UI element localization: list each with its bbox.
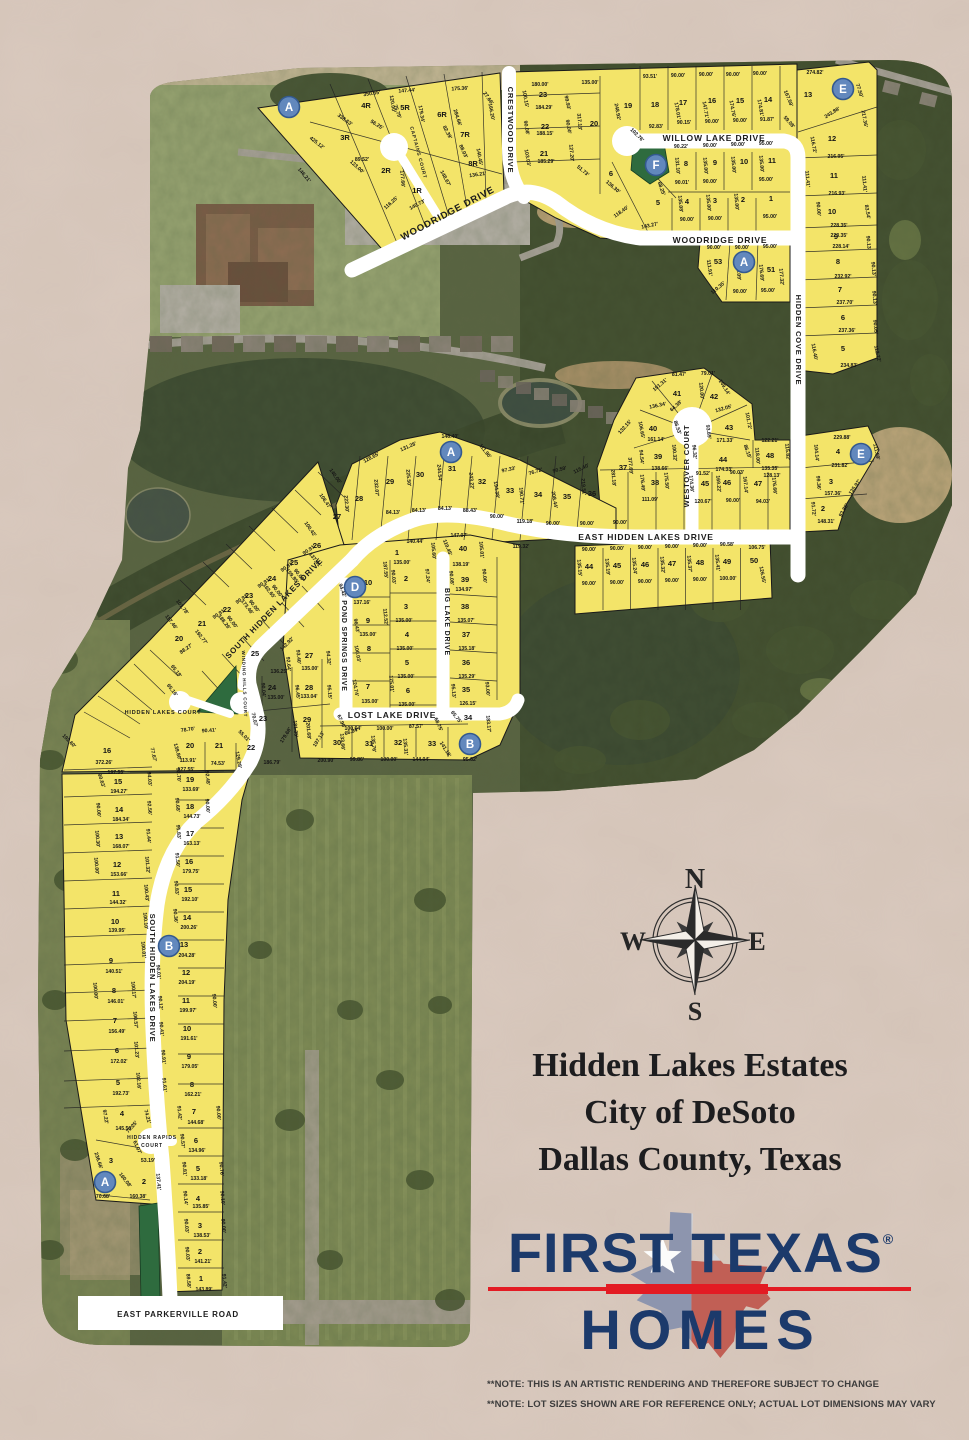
dimension-label: 95.15' bbox=[325, 685, 332, 700]
lot-number: 34 bbox=[534, 490, 543, 499]
dimension-label: 231.82' bbox=[831, 463, 848, 469]
dimension-label: 99.86' bbox=[350, 757, 364, 763]
dimension-label: 90.00' bbox=[733, 118, 747, 124]
logo-wordmark-top: FIRST TEXAS® bbox=[468, 1220, 933, 1285]
dimension-label: 91.72' bbox=[809, 502, 816, 517]
dimension-label: 93.40' bbox=[294, 650, 301, 665]
lot-number: 8R bbox=[468, 159, 478, 168]
lot-number: 27 bbox=[333, 512, 341, 521]
lot-number: 50 bbox=[750, 556, 758, 565]
dimension-label: 90.00' bbox=[94, 803, 101, 818]
dimension-label: 136.25' bbox=[270, 669, 287, 675]
dimension-label: 90.00' bbox=[735, 245, 749, 251]
dimension-label: 100.00' bbox=[380, 757, 397, 763]
lot-number: 8 bbox=[367, 644, 371, 653]
lot-number: 10 bbox=[183, 1024, 191, 1033]
lot-number: 3 bbox=[198, 1221, 202, 1230]
dimension-label: 90.00' bbox=[753, 71, 767, 77]
dimension-label: 194.27' bbox=[110, 789, 127, 795]
dimension-label: 135.00' bbox=[398, 702, 415, 708]
lot-number: 22 bbox=[223, 605, 231, 614]
lot-number: 9 bbox=[109, 956, 113, 965]
dimension-label: 90.13' bbox=[864, 236, 871, 251]
marker-letter: E bbox=[857, 449, 865, 461]
lot-number: 4R bbox=[361, 101, 371, 110]
lot-number: 5 bbox=[405, 658, 409, 667]
lot-number: 5 bbox=[116, 1078, 120, 1087]
dimension-label: 162.21' bbox=[184, 1092, 201, 1098]
lot-number: 2 bbox=[821, 504, 825, 513]
dimension-label: 119.32' bbox=[513, 544, 530, 550]
lot-number: 29 bbox=[386, 477, 394, 486]
dimension-label: 90.03' bbox=[183, 1247, 190, 1262]
lot-number: 5R bbox=[400, 103, 410, 112]
dimension-label: 90.00' bbox=[726, 72, 740, 78]
dimension-label: 90.10' bbox=[218, 1191, 225, 1206]
lot-number: 6R bbox=[437, 110, 447, 119]
dimension-label: 95.00' bbox=[763, 214, 777, 220]
lot-number: 30 bbox=[416, 470, 424, 479]
dimension-label: 216.93' bbox=[828, 191, 845, 197]
registered-mark: ® bbox=[883, 1231, 893, 1247]
dimension-label: 232.92' bbox=[834, 274, 851, 280]
dimension-label: 90.00' bbox=[610, 580, 624, 586]
lot-number: 19 bbox=[186, 775, 194, 784]
lot-number: 44 bbox=[585, 562, 594, 571]
dimension-label: 135.85' bbox=[192, 1204, 209, 1210]
dimension-label: 156.49' bbox=[108, 1029, 125, 1035]
marker-letter: D bbox=[351, 582, 359, 594]
lot-number: 21 bbox=[198, 619, 206, 628]
lot-number: 35 bbox=[462, 685, 470, 694]
lot-number: 45 bbox=[613, 561, 621, 570]
dimension-label: 144.04' bbox=[412, 757, 429, 763]
lot-number: 14 bbox=[183, 913, 192, 922]
dimension-label: 237.36' bbox=[838, 328, 855, 334]
dimension-label: 179.05' bbox=[181, 1064, 198, 1070]
dimension-label: 135.00' bbox=[581, 80, 598, 86]
dimension-label: 135.18' bbox=[458, 646, 475, 652]
lot-number: 1 bbox=[769, 194, 773, 203]
lot-number: 20 bbox=[186, 741, 194, 750]
compass-south-label: S bbox=[688, 997, 702, 1026]
lot-number: 3 bbox=[404, 602, 408, 611]
dimension-label: 90.00' bbox=[580, 521, 594, 527]
dimension-label: 90.00' bbox=[665, 578, 679, 584]
dimension-label: 90.00' bbox=[733, 289, 747, 295]
lot-number: 40 bbox=[459, 544, 467, 553]
lot-number: 37 bbox=[462, 630, 470, 639]
lot-number: 15 bbox=[184, 885, 192, 894]
dimension-label: 90.13' bbox=[869, 262, 876, 277]
dimension-label: 229.88' bbox=[833, 435, 850, 441]
dimension-label: 90.03' bbox=[730, 470, 744, 476]
dimension-label: 175.36' bbox=[451, 86, 468, 93]
dimension-label: 192.10' bbox=[181, 897, 198, 903]
dimension-label: 228.14' bbox=[832, 244, 849, 250]
lot-number: 39 bbox=[654, 452, 662, 461]
lot-number: 14 bbox=[764, 95, 773, 104]
lot-number: 2 bbox=[404, 574, 408, 583]
lot-number: 48 bbox=[766, 451, 774, 460]
street-label: BIG LAKE DRIVE bbox=[443, 588, 450, 656]
bulb-captains bbox=[380, 133, 408, 161]
dimension-label: 161.14' bbox=[647, 437, 664, 443]
dimension-label: 237.70' bbox=[836, 300, 853, 306]
dimension-label: 148.31' bbox=[817, 519, 834, 525]
street-label: CRESTWOOD DRIVE bbox=[506, 87, 515, 174]
lot-number: 12 bbox=[182, 968, 190, 977]
lot-number: 22 bbox=[541, 122, 549, 131]
dimension-label: 135.35' bbox=[761, 466, 778, 472]
compass-north-label: N bbox=[685, 864, 705, 895]
dimension-label: 153.66' bbox=[110, 872, 127, 878]
lot-number: 5 bbox=[841, 344, 845, 353]
lot-number: 46 bbox=[641, 560, 649, 569]
marker-a: A bbox=[734, 252, 755, 273]
lot-number: 18 bbox=[186, 802, 194, 811]
logo-red-line-thick bbox=[606, 1284, 768, 1294]
marker-b: B bbox=[159, 936, 180, 957]
lot-number: 43 bbox=[725, 423, 733, 432]
dimension-label: 146.40' bbox=[441, 434, 458, 440]
dimension-label: 93.51' bbox=[643, 74, 657, 80]
lot-number: 8 bbox=[836, 257, 840, 266]
lot-number: 41 bbox=[673, 389, 681, 398]
dimension-label: 90.03' bbox=[389, 570, 396, 585]
dimension-label: 139.95' bbox=[108, 928, 125, 934]
lot-number: 7 bbox=[113, 1016, 117, 1025]
dimension-label: 74.53' bbox=[211, 761, 225, 767]
marker-e: E bbox=[851, 444, 872, 465]
dimension-label: 90.04' bbox=[259, 683, 266, 698]
dimension-label: 90.00' bbox=[693, 543, 707, 549]
lot-number: 3 bbox=[829, 477, 833, 486]
dimension-label: 163.13' bbox=[183, 841, 200, 847]
dimension-label: 95.82' bbox=[463, 757, 477, 763]
dimension-label: 126.15' bbox=[459, 701, 476, 707]
dimension-label: 143.89' bbox=[195, 1287, 212, 1293]
lot-number: 7R bbox=[460, 130, 470, 139]
dimension-label: 134.96' bbox=[188, 1148, 205, 1154]
dimension-label: 100.00' bbox=[376, 726, 393, 732]
dimension-label: 92.56' bbox=[145, 801, 152, 816]
lot-number: 6 bbox=[406, 686, 410, 695]
dimension-label: 90.57' bbox=[178, 1134, 185, 1149]
dimension-label: 90.00' bbox=[671, 73, 685, 79]
lot-number: 40 bbox=[649, 424, 657, 433]
lot-number: 33 bbox=[506, 486, 514, 495]
lot-number: 30 bbox=[333, 738, 341, 747]
dimension-label: 120.67' bbox=[694, 499, 711, 505]
dimension-label: 90.41' bbox=[202, 728, 217, 735]
lot-number: 7 bbox=[192, 1107, 196, 1116]
street-label: COURT bbox=[141, 1143, 163, 1149]
dimension-label: 147.44' bbox=[398, 87, 415, 94]
title-line-city: City of DeSoto bbox=[430, 1089, 950, 1136]
lot-number: 23 bbox=[539, 90, 547, 99]
dimension-label: 90.00' bbox=[480, 569, 487, 584]
dimension-label: 90.00' bbox=[708, 216, 722, 222]
disclaimer-notes: **NOTE: THIS IS AN ARTISTIC RENDERING AN… bbox=[487, 1375, 962, 1415]
dimension-label: 234.83' bbox=[840, 363, 857, 369]
dimension-label: 94.03' bbox=[756, 499, 770, 505]
dimension-label: 119.18' bbox=[517, 519, 534, 525]
dimension-label: 90.00' bbox=[203, 799, 210, 814]
lot-number: 2R bbox=[381, 166, 391, 175]
compass-west-label: W bbox=[620, 927, 646, 956]
marker-e: E bbox=[833, 79, 854, 100]
lot-number: 8 bbox=[112, 986, 116, 995]
dimension-label: 137.16' bbox=[353, 600, 370, 606]
dimension-label: 146.01' bbox=[107, 999, 124, 1005]
lot-number: 9 bbox=[834, 232, 838, 241]
dimension-label: 200.90' bbox=[317, 758, 334, 764]
dimension-label: 90.00' bbox=[490, 514, 504, 520]
dimension-label: 91.87' bbox=[760, 117, 774, 123]
dimension-label: 90.41' bbox=[157, 1022, 164, 1037]
marker-a: A bbox=[279, 97, 300, 118]
street-label: LOST LAKE DRIVE bbox=[348, 710, 437, 720]
dimension-label: 204.28' bbox=[178, 953, 195, 959]
lot-number: 11 bbox=[182, 996, 190, 1005]
dimension-label: 100.00' bbox=[719, 576, 736, 582]
street-label: HIDDEN RAPIDS bbox=[127, 1135, 177, 1141]
dimension-label: 90.00' bbox=[707, 245, 721, 251]
dimension-label: 179.75' bbox=[182, 869, 199, 875]
dimension-label: 90.00' bbox=[638, 579, 652, 585]
dimension-label: 91.42' bbox=[175, 1106, 182, 1121]
lot-number: 2 bbox=[741, 195, 745, 204]
dimension-label: 90.58' bbox=[720, 542, 734, 548]
lot-number: 7 bbox=[838, 285, 842, 294]
dimension-label: 90.00' bbox=[546, 521, 560, 527]
dimension-label: 90.00' bbox=[814, 202, 821, 217]
lot-number: 33 bbox=[428, 739, 436, 748]
lot-number: 35 bbox=[563, 492, 571, 501]
dimension-label: 88.43' bbox=[463, 508, 477, 514]
dimension-label: 90.00' bbox=[665, 544, 679, 550]
marker-letter: B bbox=[165, 941, 173, 953]
lot-number: 47 bbox=[668, 559, 676, 568]
lot-number: 49 bbox=[723, 557, 731, 566]
lot-number: 16 bbox=[185, 857, 193, 866]
dimension-label: 135.00' bbox=[397, 674, 414, 680]
lot-number: 10 bbox=[740, 157, 748, 166]
dimension-label: 89.52' bbox=[355, 157, 369, 163]
lot-number: 15 bbox=[736, 96, 744, 105]
dimension-label: 144.73' bbox=[183, 814, 200, 820]
dimension-label: 90.00' bbox=[582, 547, 596, 553]
lot-number: 1 bbox=[199, 1274, 203, 1283]
project-title: Hidden Lakes Estates City of DeSoto Dall… bbox=[430, 1042, 950, 1183]
dimension-label: 111.09' bbox=[642, 497, 659, 503]
marker-letter: A bbox=[101, 1177, 109, 1189]
lot-number: 18 bbox=[651, 100, 659, 109]
dimension-label: 135.07' bbox=[457, 618, 474, 624]
dimension-label: 106.75' bbox=[748, 545, 765, 551]
dimension-label: 90.13' bbox=[870, 291, 877, 306]
dimension-label: 90.00' bbox=[705, 119, 719, 125]
lot-number: 9 bbox=[187, 1052, 191, 1061]
marker-b: B bbox=[460, 734, 481, 755]
lot-number: 9 bbox=[366, 616, 370, 625]
dimension-label: 93.00' bbox=[483, 682, 490, 697]
dimension-label: 90.03' bbox=[182, 1219, 189, 1234]
lot-number: 34 bbox=[464, 713, 473, 722]
marker-letter: A bbox=[447, 447, 455, 459]
lot-number: 16 bbox=[708, 96, 716, 105]
dimension-label: 186.79' bbox=[263, 760, 280, 766]
dimension-label: 84.13' bbox=[438, 506, 452, 512]
dimension-label: 160.38' bbox=[129, 1194, 146, 1200]
dimension-label: 90.00' bbox=[680, 217, 694, 223]
marker-letter: F bbox=[652, 160, 659, 172]
marker-a: A bbox=[441, 442, 462, 463]
dimension-label: 135.00' bbox=[396, 646, 413, 652]
lot-number: 11 bbox=[768, 156, 776, 165]
dimension-label: 53.19' bbox=[141, 1158, 155, 1164]
dimension-label: 89.58' bbox=[184, 1274, 191, 1289]
note-artistic-rendering: **NOTE: THIS IS AN ARTISTIC RENDERING AN… bbox=[487, 1375, 962, 1395]
dimension-label: 91.52' bbox=[696, 471, 710, 477]
lot-number: 13 bbox=[804, 90, 812, 99]
dimension-label: 147.07' bbox=[450, 533, 467, 539]
dimension-label: 133.69' bbox=[182, 787, 199, 793]
lot-number: 11 bbox=[830, 171, 838, 180]
compass-east-label: E bbox=[748, 927, 765, 956]
lot-number: 28 bbox=[305, 683, 313, 692]
street-label: POND SPRINGS DRIVE bbox=[340, 600, 347, 691]
dimension-label: 180.00' bbox=[531, 82, 548, 88]
dimension-label: 204.19' bbox=[178, 980, 195, 986]
logo-wordmark-bottom: HOMES bbox=[468, 1297, 933, 1362]
dimension-label: 122.21' bbox=[761, 438, 778, 444]
lot-number: 6 bbox=[841, 313, 845, 322]
dimension-label: 184.34' bbox=[112, 817, 129, 823]
dimension-label: 135.00' bbox=[301, 666, 318, 672]
dimension-label: 90.00' bbox=[699, 72, 713, 78]
lot-number: 12 bbox=[828, 134, 836, 143]
dimension-label: 92.48' bbox=[203, 771, 210, 786]
lot-number: 31 bbox=[448, 464, 456, 473]
lot-number: 46 bbox=[723, 478, 731, 487]
lot-number: 3 bbox=[713, 196, 717, 205]
lot-number: 8 bbox=[684, 159, 688, 168]
dimension-label: 135.00' bbox=[361, 699, 378, 705]
street-label: SOUTH HIDDEN LAKES DRIVE bbox=[148, 914, 157, 1043]
lot-number: 1 bbox=[395, 548, 399, 557]
dimension-label: 133.18' bbox=[190, 1176, 207, 1182]
dimension-label: 171.33' bbox=[716, 438, 733, 444]
dimension-label: 138.19' bbox=[452, 562, 469, 568]
street-label: WOODRIDGE DRIVE bbox=[673, 235, 768, 245]
dimension-label: 134.97' bbox=[455, 587, 472, 593]
dimension-label: 90.81' bbox=[180, 1162, 187, 1177]
note-lot-sizes: **NOTE: LOT SIZES SHOWN ARE FOR REFERENC… bbox=[487, 1395, 962, 1415]
lot-number: 17 bbox=[186, 829, 194, 838]
lot-number: 17 bbox=[679, 98, 687, 107]
lot-number: 8 bbox=[190, 1080, 194, 1089]
dimension-label: 90.76' bbox=[217, 1162, 224, 1177]
logo-first-texas-homes: FIRST TEXAS® HOMES bbox=[468, 1202, 933, 1372]
lot-number: 10 bbox=[828, 207, 836, 216]
dimension-label: 200.26' bbox=[180, 925, 197, 931]
lot-number: 36 bbox=[462, 658, 470, 667]
street-label: EAST PARKERVILLE ROAD bbox=[117, 1310, 239, 1319]
street-label: EAST HIDDEN LAKES DRIVE bbox=[578, 532, 714, 542]
dimension-label: 140.51' bbox=[105, 969, 122, 975]
marker-a: A bbox=[95, 1172, 116, 1193]
lot-number: 53 bbox=[714, 257, 722, 266]
dimension-label: 91.83' bbox=[174, 825, 181, 840]
lot-number: 24 bbox=[268, 574, 277, 583]
dimension-label: 168.07' bbox=[112, 844, 129, 850]
lot-number: 20 bbox=[590, 119, 598, 128]
dimension-label: 191.61' bbox=[180, 1036, 197, 1042]
lot-number: 14 bbox=[115, 805, 124, 814]
lot-number: 22 bbox=[247, 743, 255, 752]
street-label: WILLOW LAKE DRIVE bbox=[663, 133, 766, 143]
dimension-label: 90.00' bbox=[610, 546, 624, 552]
dimension-label: 133.04' bbox=[300, 694, 317, 700]
lot-number: 39 bbox=[461, 575, 469, 584]
dimension-label: 95.00' bbox=[759, 177, 773, 183]
lot-number: 38 bbox=[461, 602, 469, 611]
dimension-label: 144.32' bbox=[109, 900, 126, 906]
street-label: WESTOVER COURT bbox=[682, 425, 691, 508]
dimension-label: 228.35' bbox=[830, 223, 847, 229]
dimension-label: 97.24' bbox=[423, 569, 430, 584]
lot-number: 51 bbox=[767, 265, 775, 274]
dimension-label: 157.36' bbox=[824, 491, 841, 497]
dimension-label: 79.01' bbox=[701, 371, 715, 377]
dimension-label: 90.00' bbox=[582, 581, 596, 587]
dimension-label: 90.01' bbox=[675, 180, 689, 186]
dimension-label: 94.54' bbox=[637, 450, 644, 465]
dimension-label: 90.14' bbox=[181, 1191, 188, 1206]
lot-number: 16 bbox=[103, 746, 111, 755]
lot-number: 37 bbox=[619, 463, 627, 472]
dimension-label: 199.97' bbox=[179, 1008, 196, 1014]
lot-number: 47 bbox=[754, 479, 762, 488]
lot-number: 11 bbox=[112, 889, 120, 898]
dimension-label: 94.32' bbox=[324, 651, 331, 666]
title-line-project: Hidden Lakes Estates bbox=[430, 1042, 950, 1089]
dimension-label: 135.00' bbox=[359, 632, 376, 638]
dimension-label: 87.57' bbox=[409, 724, 423, 730]
dimension-label: 90.36' bbox=[171, 909, 178, 924]
dimension-label: 95.13' bbox=[449, 684, 456, 699]
marker-letter: E bbox=[839, 84, 847, 96]
lot-number: 6 bbox=[194, 1136, 198, 1145]
lot-number: 10 bbox=[111, 917, 119, 926]
lot-number: 21 bbox=[540, 149, 548, 158]
lot-number: 25 bbox=[251, 649, 259, 658]
dimension-label: 99.36' bbox=[814, 476, 821, 491]
dimension-label: 90.91' bbox=[159, 1050, 166, 1065]
marker-letter: A bbox=[285, 102, 293, 114]
dimension-label: 91.61' bbox=[160, 1078, 167, 1093]
lot-number: 28 bbox=[355, 494, 363, 503]
dimension-label: 70.68' bbox=[96, 1194, 110, 1200]
lot-number: 6 bbox=[115, 1046, 119, 1055]
street-label: HIDDEN COVE DRIVE bbox=[794, 295, 803, 386]
dimension-label: 141.21' bbox=[194, 1259, 211, 1265]
dimension-label: 94.03' bbox=[145, 772, 152, 787]
dimension-label: 188.15' bbox=[536, 131, 553, 137]
lot-number: 27 bbox=[305, 651, 313, 660]
